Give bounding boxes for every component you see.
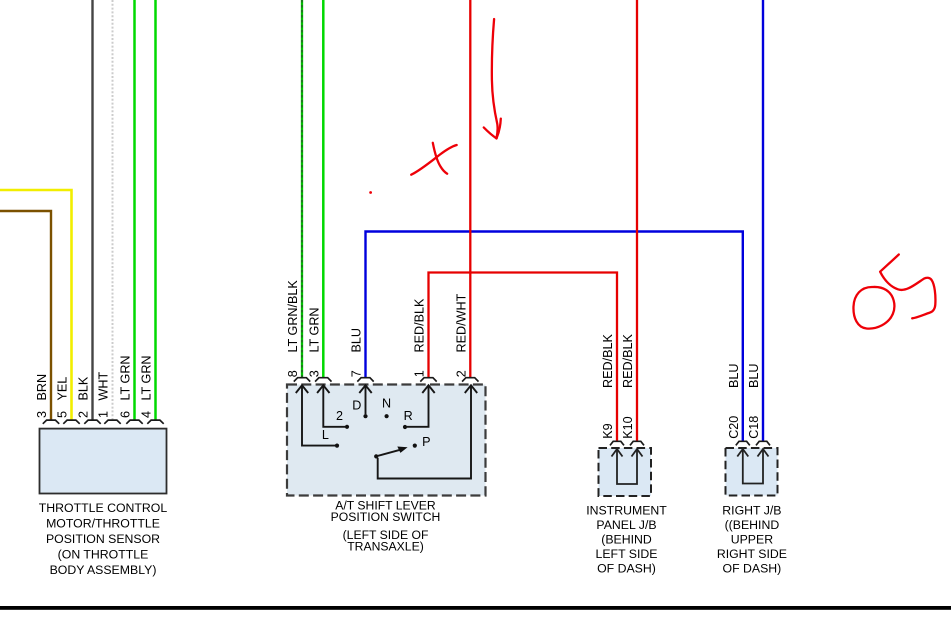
svg-text:C20: C20 [727, 416, 741, 439]
svg-text:4: 4 [140, 411, 154, 418]
svg-text:2: 2 [454, 370, 468, 377]
svg-text:PANEL J/B: PANEL J/B [596, 518, 656, 532]
svg-text:POSITION SENSOR: POSITION SENSOR [46, 532, 160, 546]
svg-text:LT GRN: LT GRN [307, 307, 321, 352]
svg-text:7: 7 [350, 370, 364, 377]
svg-text:RED/WHT: RED/WHT [454, 293, 468, 352]
svg-text:5: 5 [56, 411, 70, 418]
svg-text:RIGHT SIDE: RIGHT SIDE [717, 547, 787, 561]
svg-text:LT GRN: LT GRN [119, 355, 133, 400]
svg-text:D: D [352, 399, 361, 413]
svg-text:BLU: BLU [350, 328, 364, 353]
svg-text:3: 3 [35, 411, 49, 418]
svg-text:BRN: BRN [35, 374, 49, 401]
svg-text:RIGHT J/B: RIGHT J/B [722, 503, 781, 517]
svg-text:3: 3 [307, 370, 321, 377]
svg-text:1: 1 [97, 411, 111, 418]
svg-text:OF DASH): OF DASH) [597, 561, 656, 575]
svg-text:BLU: BLU [727, 364, 741, 389]
svg-text:LEFT SIDE: LEFT SIDE [596, 547, 658, 561]
svg-text:P: P [422, 435, 430, 449]
svg-text:R: R [404, 409, 413, 423]
svg-text:WHT: WHT [97, 372, 111, 401]
svg-text:BLU: BLU [747, 364, 761, 389]
svg-text:1: 1 [413, 370, 427, 377]
svg-text:C18: C18 [747, 416, 761, 439]
svg-text:INSTRUMENT: INSTRUMENT [586, 503, 667, 517]
svg-text:OF DASH): OF DASH) [723, 561, 782, 575]
svg-text:2: 2 [77, 411, 91, 418]
svg-text:RED/BLK: RED/BLK [413, 298, 427, 352]
svg-text:UPPER: UPPER [731, 532, 773, 546]
svg-text:2: 2 [336, 409, 343, 423]
svg-text:THROTTLE CONTROL: THROTTLE CONTROL [39, 501, 168, 515]
svg-text:YEL: YEL [56, 377, 70, 401]
svg-text:TRANSAXLE): TRANSAXLE) [347, 540, 424, 554]
svg-text:6: 6 [119, 411, 133, 418]
svg-text:(BEHIND: (BEHIND [601, 532, 652, 546]
svg-text:N: N [382, 396, 391, 410]
svg-text:LT GRN/BLK: LT GRN/BLK [286, 280, 300, 353]
svg-text:MOTOR/THROTTLE: MOTOR/THROTTLE [46, 516, 160, 530]
svg-text:K9: K9 [601, 423, 615, 438]
svg-text:RED/BLK: RED/BLK [621, 334, 635, 388]
svg-text:8: 8 [286, 370, 300, 377]
svg-text:RED/BLK: RED/BLK [601, 334, 615, 388]
svg-text:((BEHIND: ((BEHIND [725, 518, 780, 532]
svg-text:(ON THROTTLE: (ON THROTTLE [58, 547, 149, 561]
svg-text:LT GRN: LT GRN [140, 355, 154, 400]
svg-text:K10: K10 [621, 416, 635, 438]
svg-text:POSITION SWITCH: POSITION SWITCH [331, 510, 441, 524]
svg-text:BODY ASSEMBLY): BODY ASSEMBLY) [50, 563, 157, 577]
svg-text:BLK: BLK [77, 376, 91, 400]
svg-text:L: L [322, 428, 329, 442]
